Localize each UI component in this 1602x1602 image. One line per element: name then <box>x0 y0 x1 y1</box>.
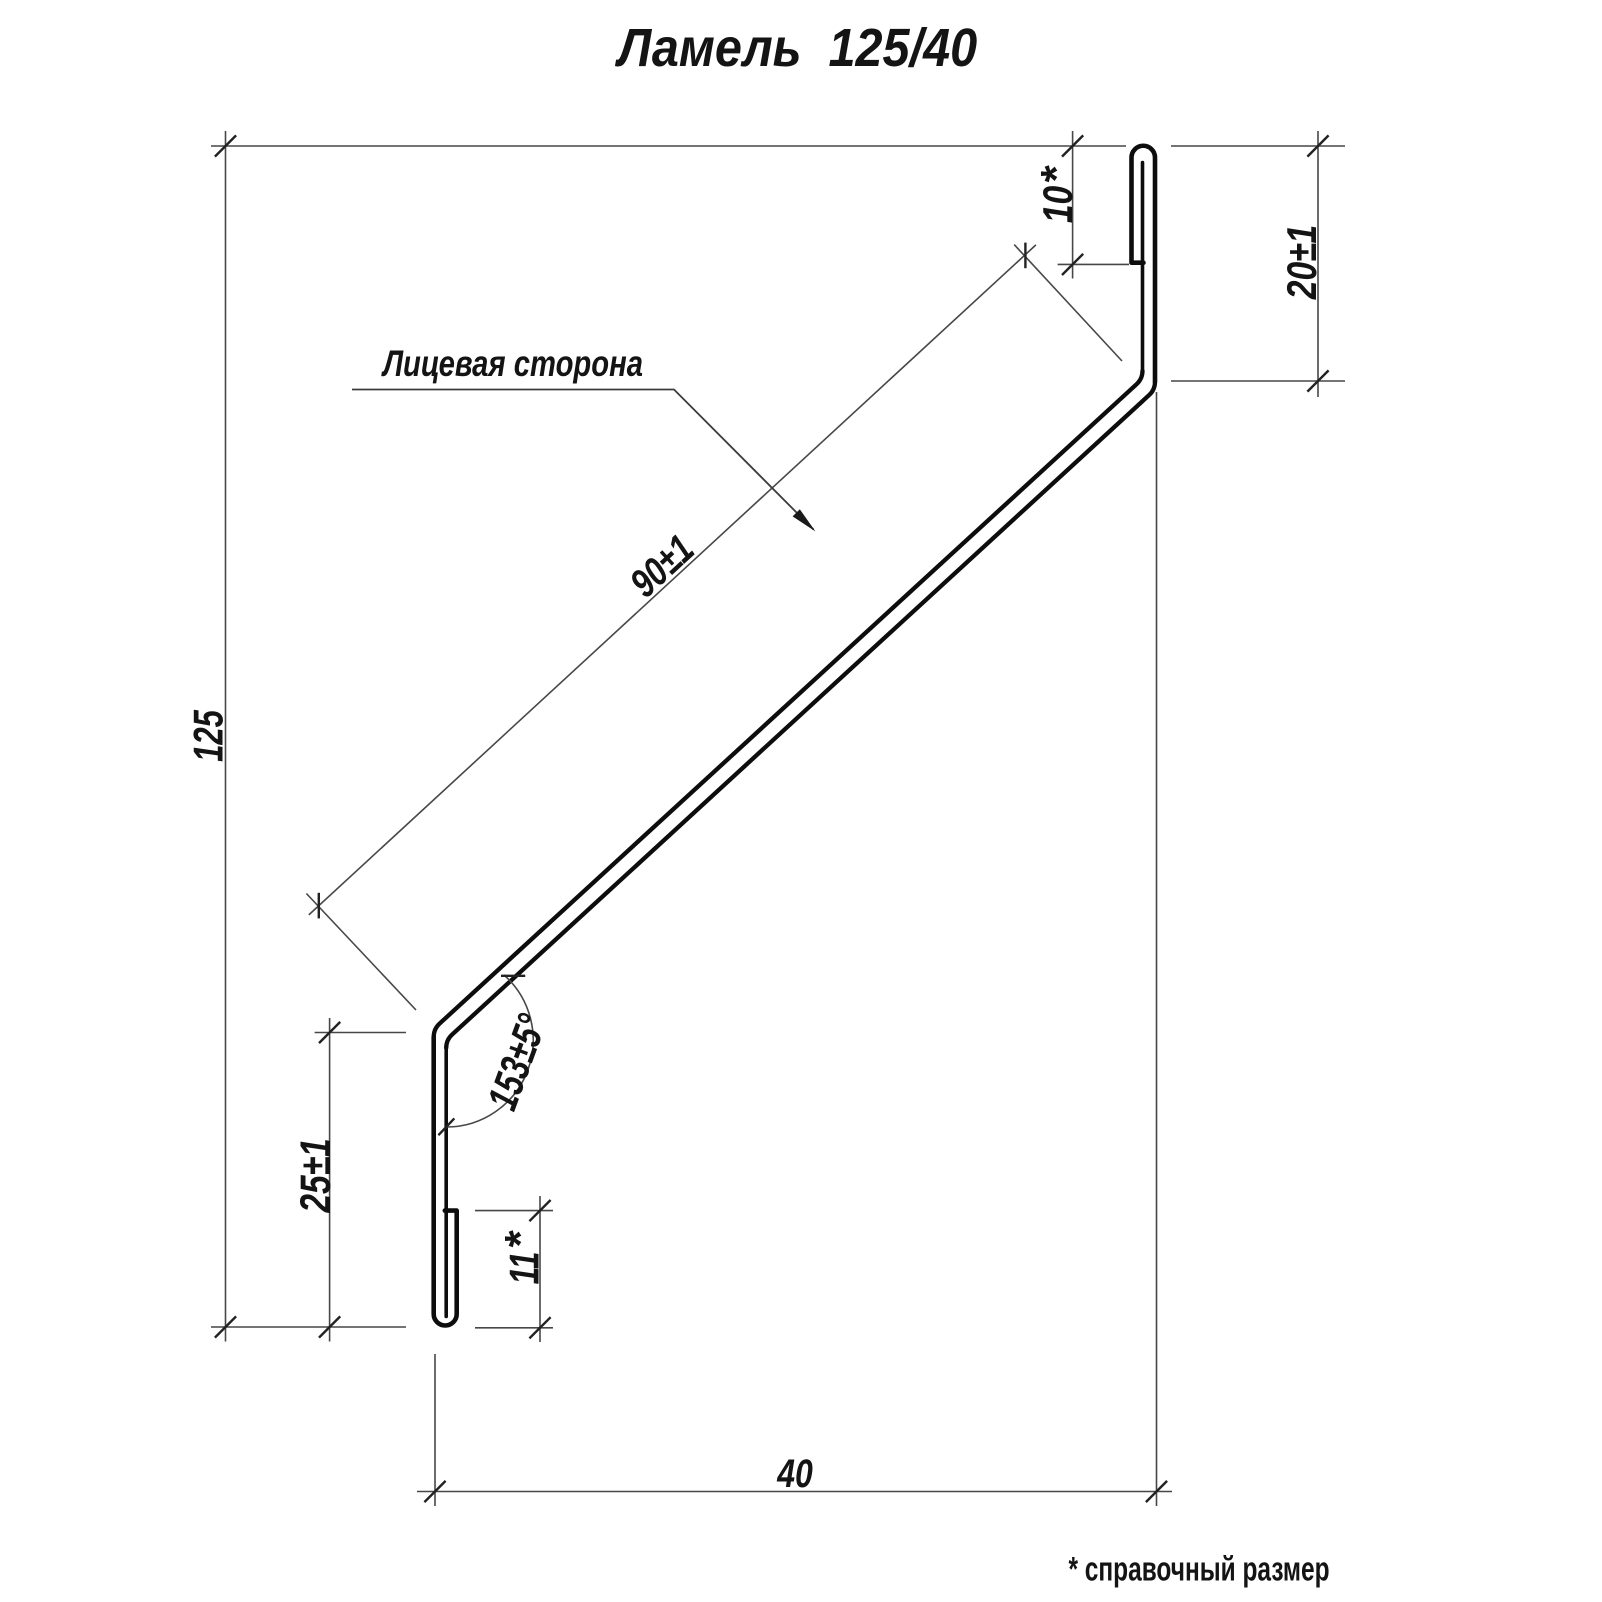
svg-text:125: 125 <box>185 710 232 762</box>
svg-text:Лицевая сторона: Лицевая сторона <box>381 344 643 385</box>
svg-text:11: 11 <box>500 1252 548 1285</box>
svg-text:*: * <box>1032 165 1081 184</box>
svg-text:Ламель 125/40: Ламель 125/40 <box>614 17 977 78</box>
svg-text:40: 40 <box>776 1451 812 1496</box>
svg-text:* справочный размер: * справочный размер <box>1068 1551 1329 1589</box>
svg-text:*: * <box>496 1230 545 1249</box>
svg-text:10: 10 <box>1036 186 1082 223</box>
svg-text:25±1: 25±1 <box>292 1138 340 1213</box>
svg-text:20±1: 20±1 <box>1280 225 1326 300</box>
